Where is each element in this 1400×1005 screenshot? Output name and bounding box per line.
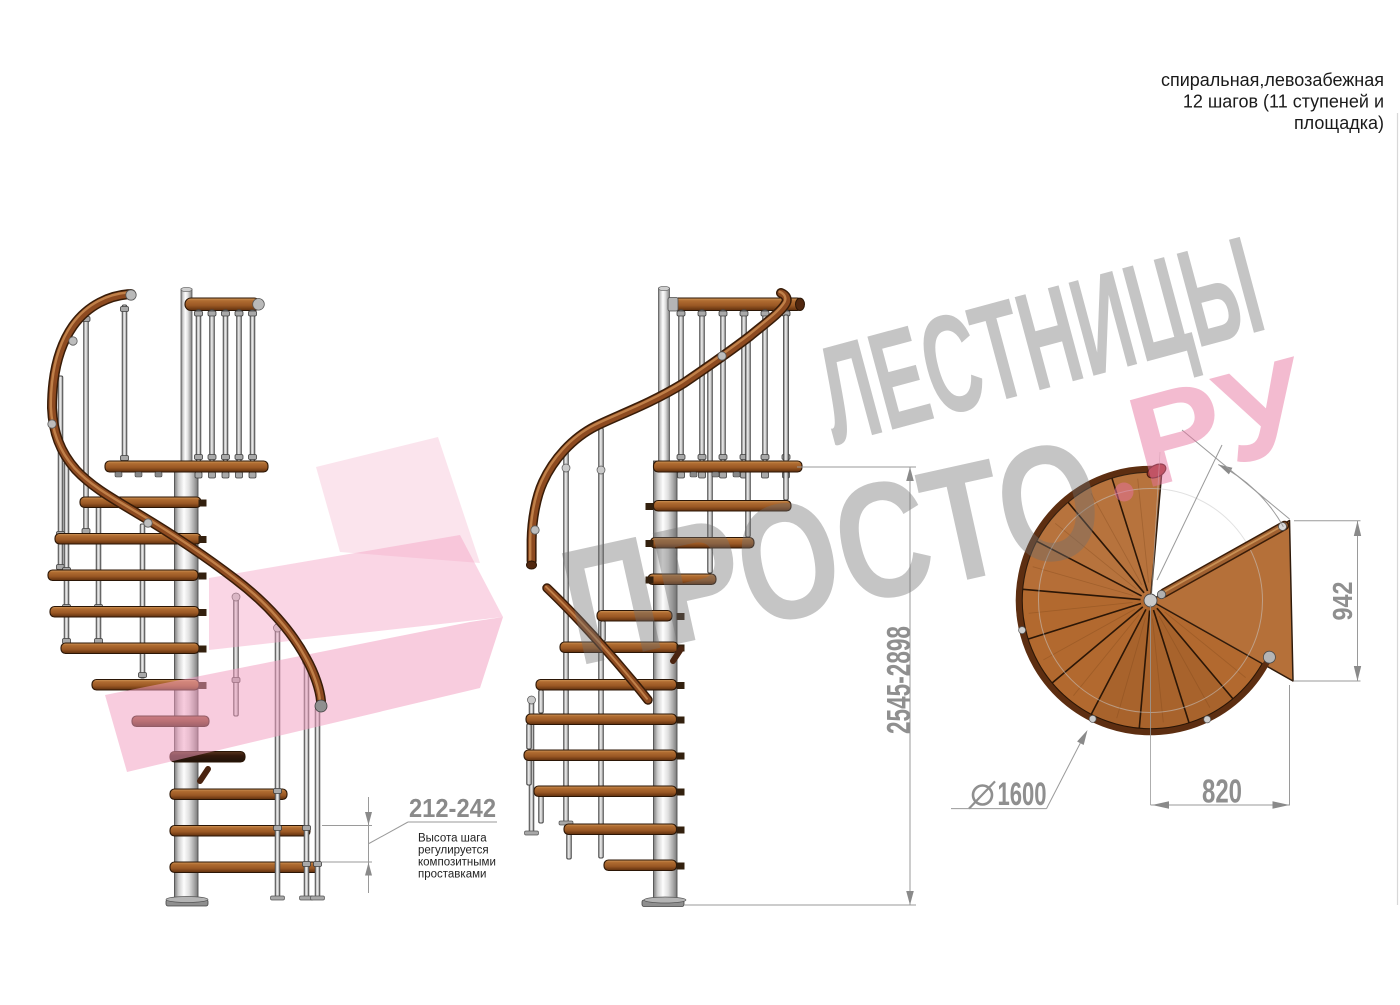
svg-text:942: 942: [1327, 582, 1358, 621]
svg-text:820: 820: [1202, 773, 1242, 810]
svg-text:2545-2898: 2545-2898: [880, 626, 917, 734]
svg-text:12 шагов (11 ступеней и: 12 шагов (11 ступеней и: [1183, 92, 1384, 112]
svg-text:площадка): площадка): [1294, 113, 1384, 133]
svg-text:Высота шага: Высота шага: [418, 833, 487, 845]
svg-text:проставками: проставками: [418, 869, 486, 881]
svg-text:спиральная,левозабежная: спиральная,левозабежная: [1161, 70, 1384, 90]
svg-text:1600: 1600: [998, 776, 1047, 812]
svg-text:регулируется: регулируется: [418, 845, 489, 857]
svg-text:212-242: 212-242: [409, 793, 496, 823]
svg-text:композитными: композитными: [418, 857, 496, 869]
